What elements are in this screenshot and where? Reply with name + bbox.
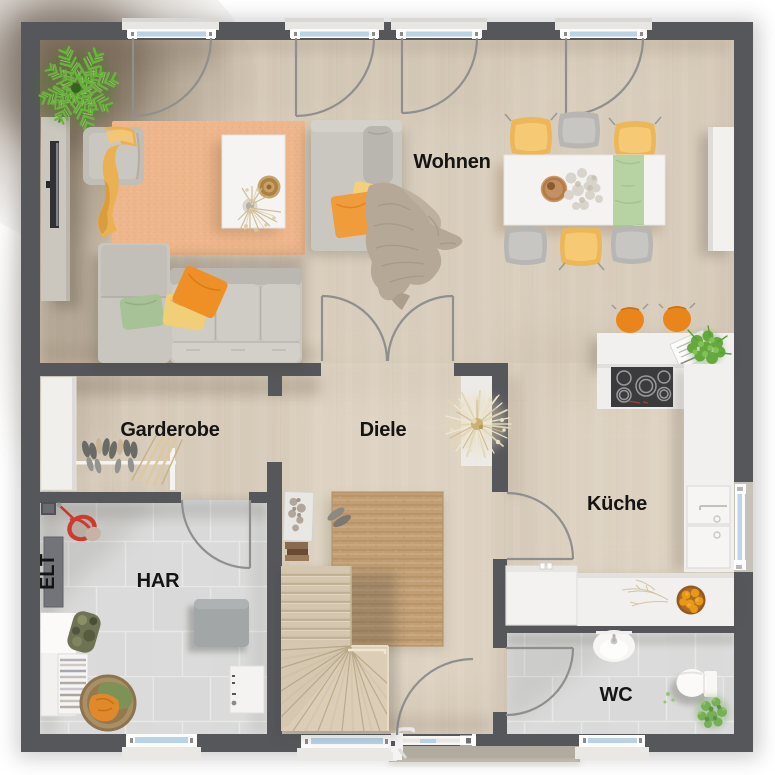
svg-text:ELT: ELT <box>37 554 59 590</box>
svg-text:HAR: HAR <box>137 570 180 592</box>
svg-text:WC: WC <box>600 684 633 706</box>
svg-text:Garderobe: Garderobe <box>120 419 219 441</box>
svg-text:Diele: Diele <box>360 419 407 441</box>
svg-text:Wohnen: Wohnen <box>413 151 490 173</box>
svg-text:Küche: Küche <box>587 493 647 515</box>
